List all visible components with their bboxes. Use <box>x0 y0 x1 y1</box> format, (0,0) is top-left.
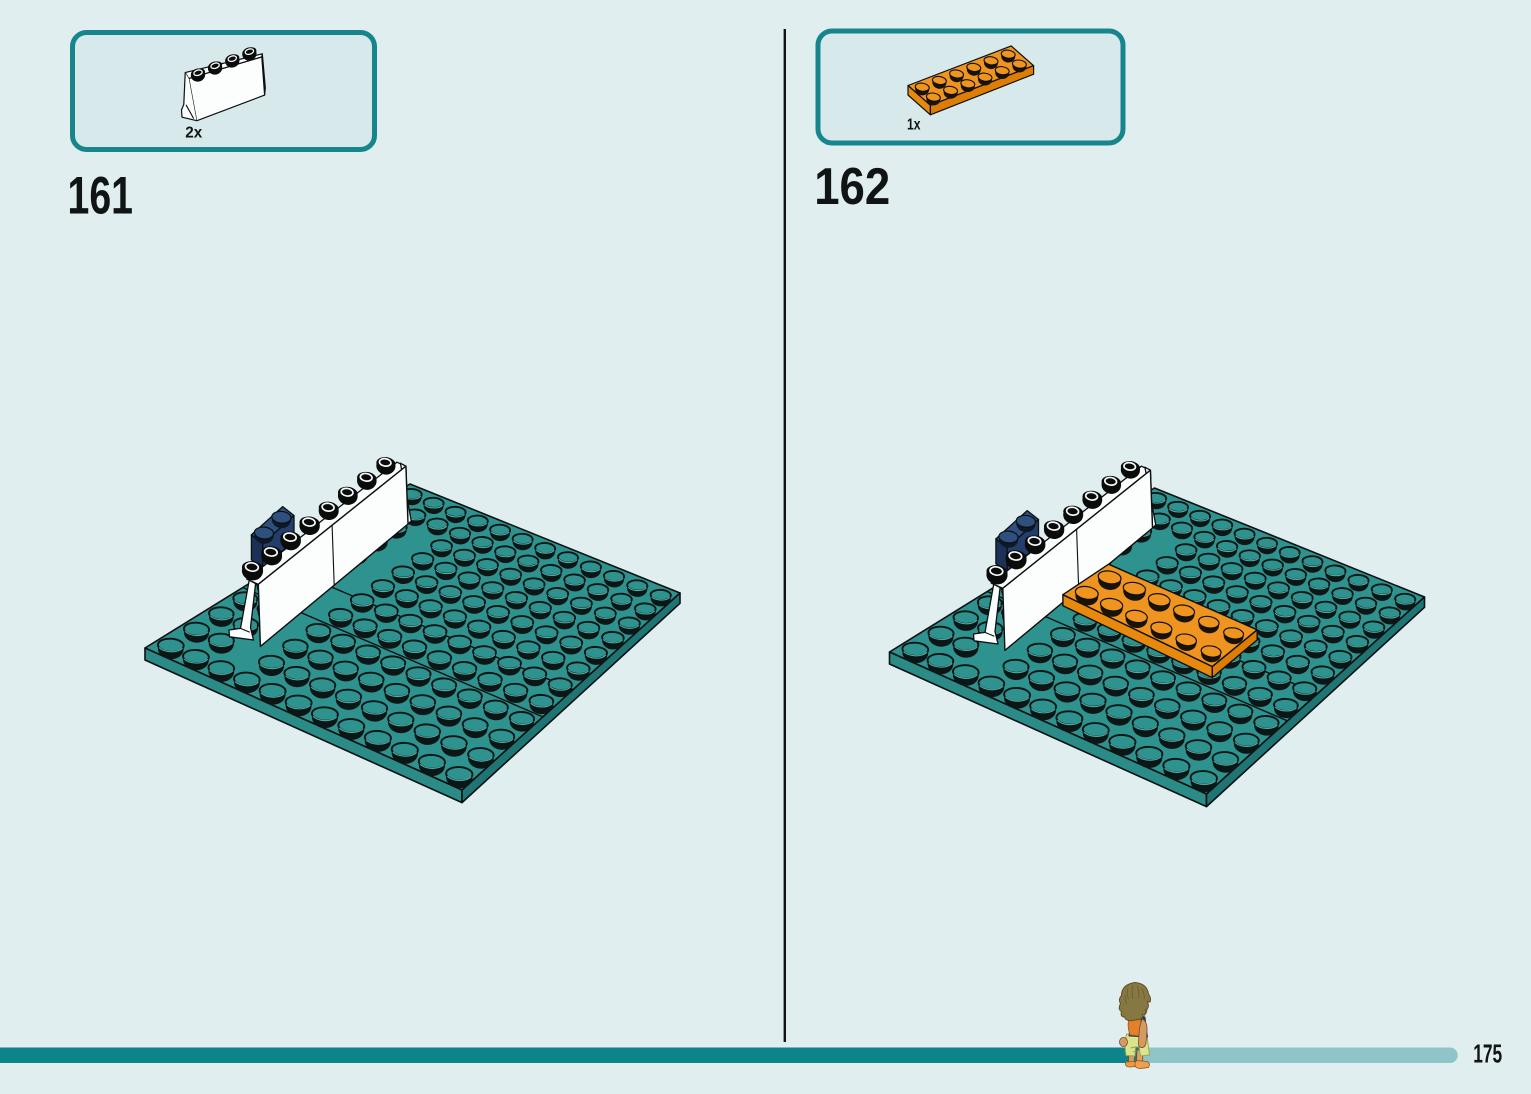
svg-text:2x: 2x <box>185 125 202 142</box>
svg-text:161: 161 <box>68 167 134 226</box>
svg-text:175: 175 <box>1473 1039 1502 1069</box>
svg-text:1x: 1x <box>907 116 921 133</box>
svg-text:162: 162 <box>814 158 890 216</box>
